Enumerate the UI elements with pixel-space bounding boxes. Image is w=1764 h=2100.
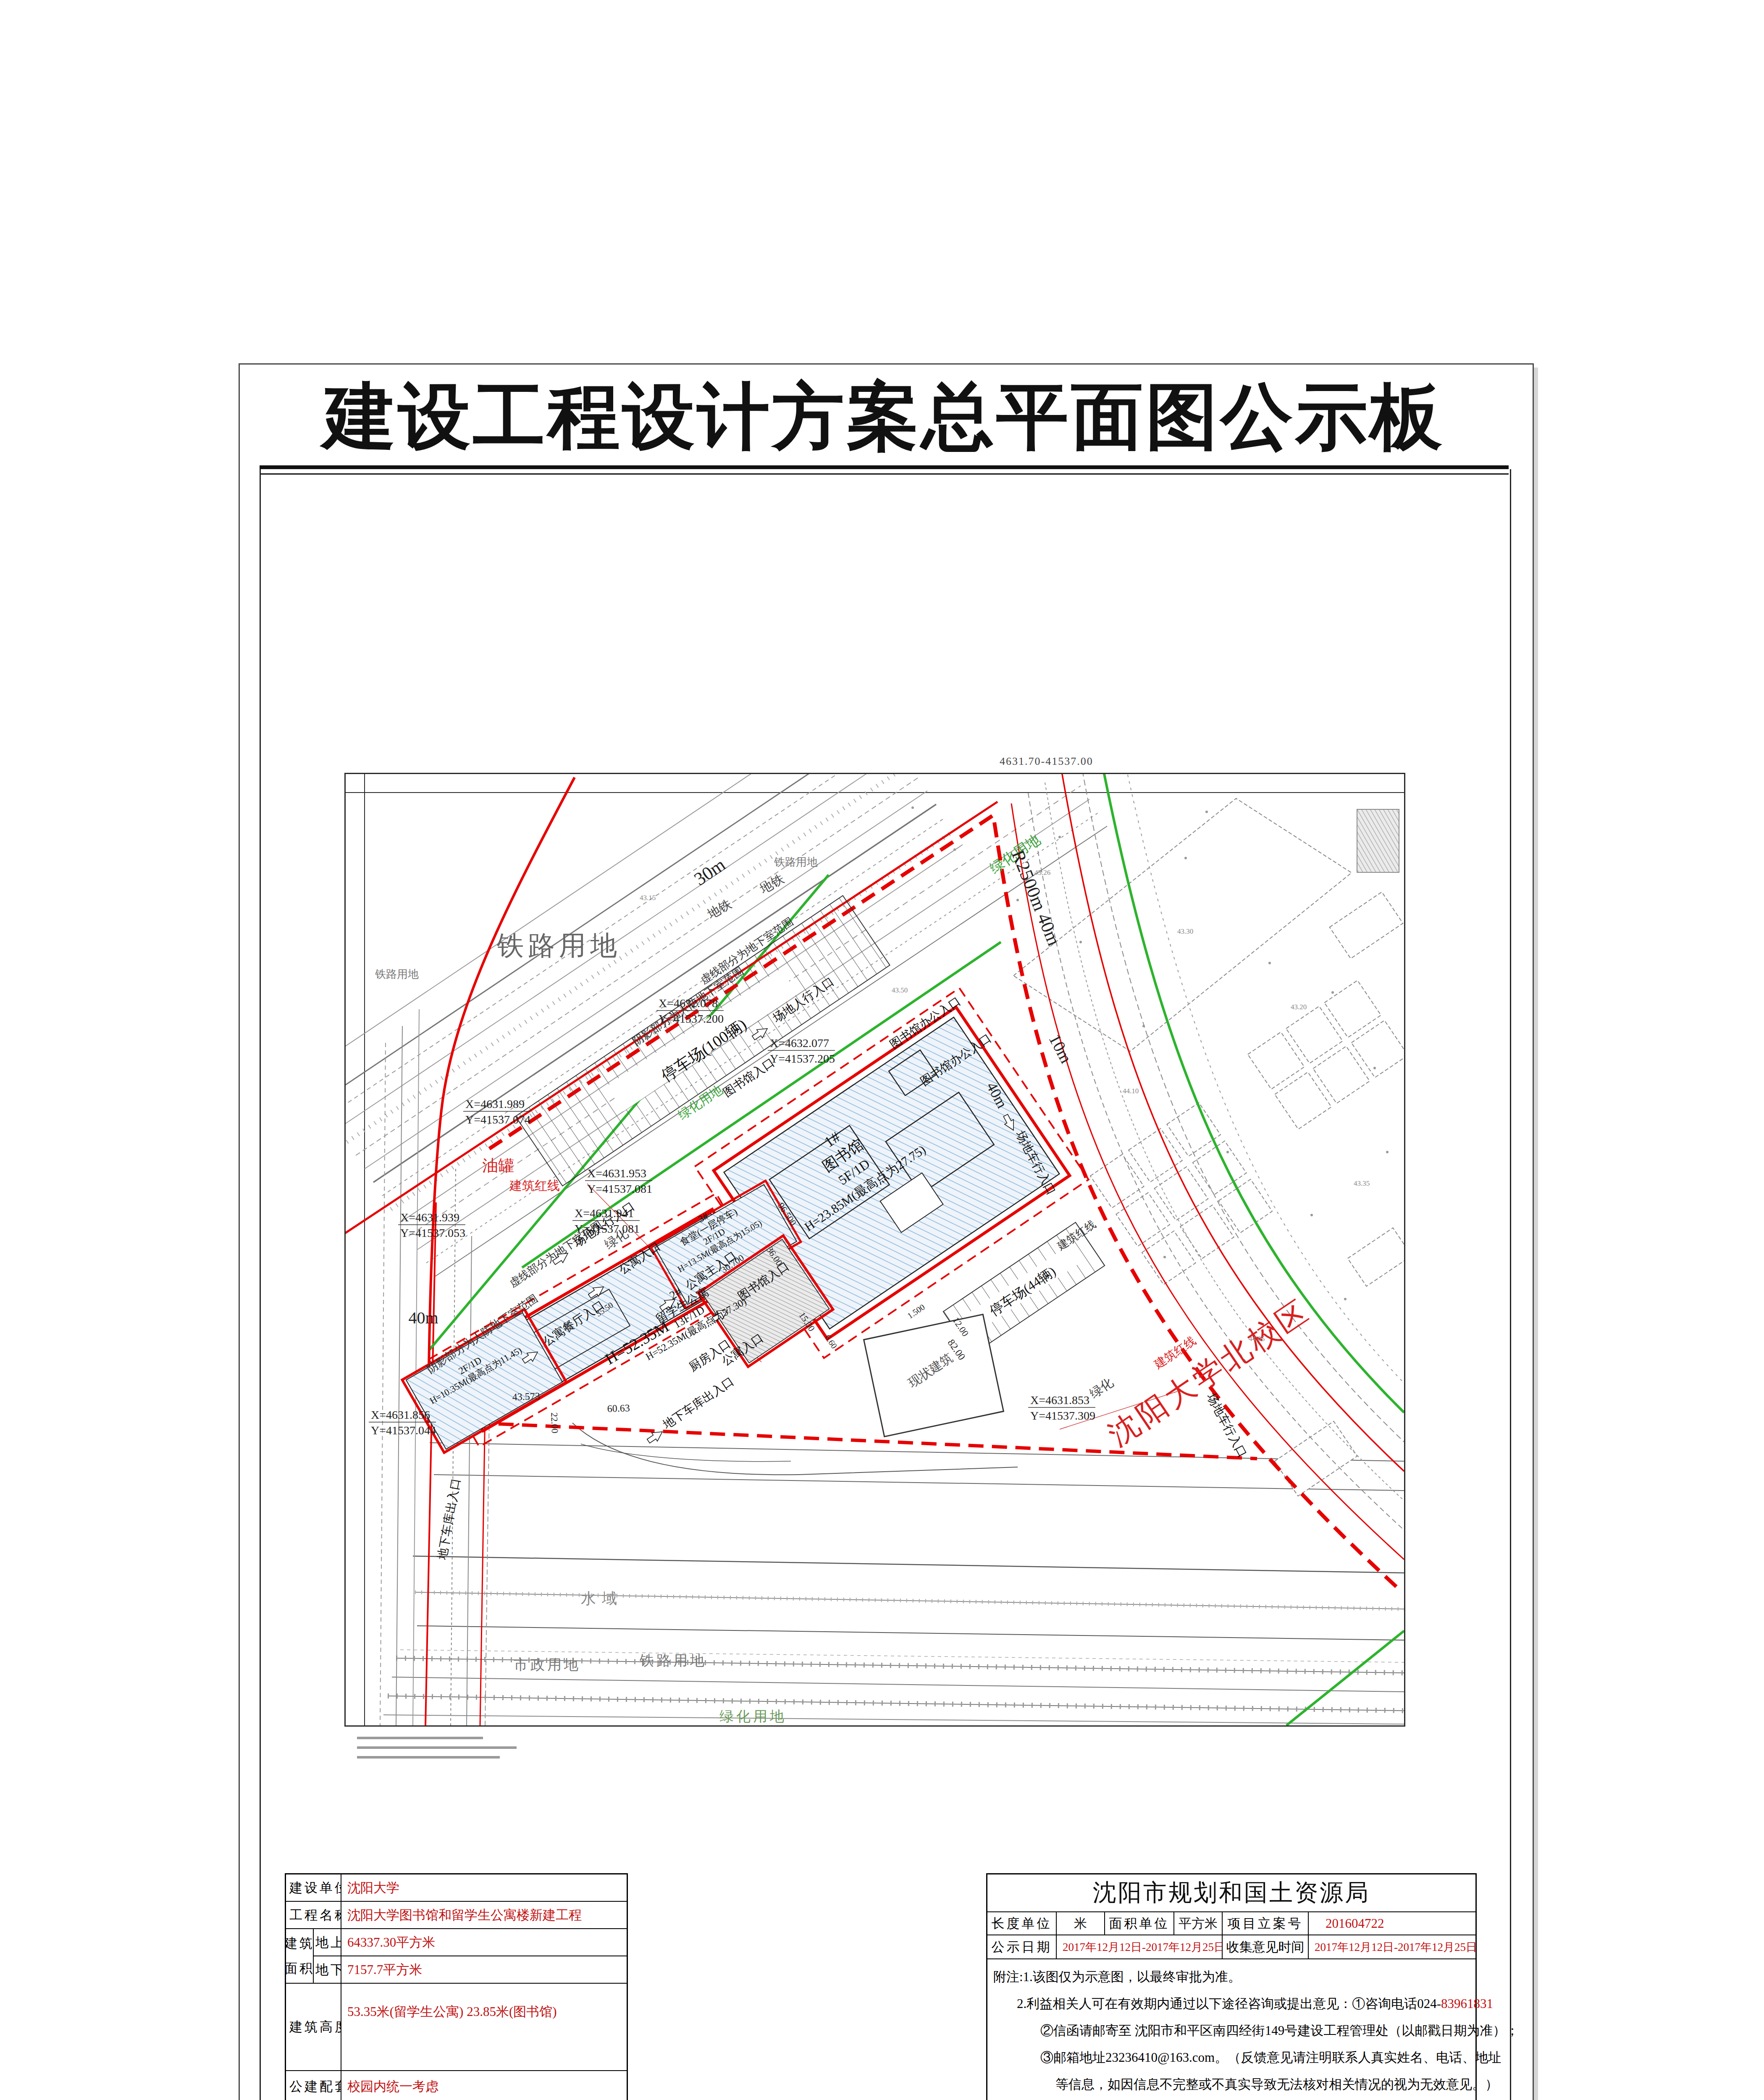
title-rule-thick bbox=[260, 465, 1509, 469]
info-label-height: 建筑高度 bbox=[286, 1984, 341, 2071]
area-label: 市政用地 bbox=[514, 1657, 581, 1672]
coord-y: Y=41537.044 bbox=[371, 1424, 436, 1437]
spot-elevation: 43.30 bbox=[1177, 927, 1193, 935]
info-value-height: 53.35米(留学生公寓) 23.85米(图书馆) bbox=[341, 1984, 627, 2071]
entrance-label: 地下车库出入口 bbox=[660, 1374, 736, 1431]
coord-x: X=4631.989 bbox=[465, 1097, 525, 1110]
coord-y: Y=41537.074 bbox=[465, 1113, 530, 1126]
metro-label: 地铁 bbox=[757, 871, 786, 896]
info-value-unit: 沈阳大学 bbox=[341, 1874, 627, 1902]
publicity-date-value: 2017年12月12日-2017年12月25日 bbox=[1057, 1935, 1223, 1959]
dim-label: R2500m 40m bbox=[1008, 847, 1065, 949]
area-label: 绿化用地 bbox=[719, 1709, 787, 1724]
dim-label: 40m bbox=[408, 1308, 438, 1327]
coord-y: Y=41537.200 bbox=[659, 1012, 724, 1025]
dim-label: 22.00 bbox=[549, 1412, 560, 1433]
coord-y: Y=41537.081 bbox=[587, 1182, 652, 1195]
area-label: 铁路用地 bbox=[639, 1653, 707, 1668]
coord-x: X=4631.953 bbox=[587, 1167, 646, 1180]
coord-x: X=4632.078 bbox=[659, 997, 718, 1010]
red-line-label: 建筑红线 bbox=[509, 1179, 560, 1192]
metro-label: 地铁 bbox=[705, 897, 734, 921]
info-label-above: 地上 bbox=[314, 1929, 341, 1956]
coord-y: Y=41537.309 bbox=[1030, 1409, 1095, 1422]
agency-title: 沈阳市规划和国土资源局 bbox=[987, 1874, 1475, 1912]
coord-y: Y=41537.205 bbox=[770, 1052, 835, 1065]
area-label: 铁路用地 bbox=[774, 856, 818, 868]
map-source-note-line bbox=[357, 1756, 500, 1759]
map-source-note-line bbox=[357, 1746, 517, 1749]
page-title: 建设工程设计方案总平面图公示板 bbox=[260, 369, 1509, 461]
dim-label: 10m bbox=[1045, 1031, 1076, 1066]
coord-x: X=4631.939 bbox=[400, 1211, 459, 1224]
water-band bbox=[413, 1556, 1404, 1640]
map-source-note-line bbox=[357, 1737, 483, 1739]
spot-elevation: 44.05 bbox=[1249, 1335, 1265, 1343]
info-value-project: 沈阳大学图书馆和留学生公寓楼新建工程 bbox=[341, 1902, 627, 1929]
spot-elevation: 44.10 bbox=[1123, 1087, 1139, 1095]
note-line-3: ②信函请邮寄至 沈阳市和平区南四经街149号建设工程管理处（以邮戳日期为准）； bbox=[993, 2017, 1470, 2044]
unit-length-value: 米 bbox=[1057, 1912, 1105, 1935]
info-value-above: 64337.30平方米 bbox=[341, 1929, 627, 1956]
unit-length-label: 长度单位 bbox=[987, 1912, 1057, 1935]
case-number-value: 201604722 bbox=[1309, 1912, 1475, 1935]
info-label-unit: 建设单位 bbox=[286, 1874, 341, 1902]
area-label: 水域 bbox=[581, 1590, 623, 1607]
info-label-area1: 建筑 bbox=[286, 1935, 314, 1952]
feedback-time-value: 2017年12月12日-2017年12月25日 bbox=[1309, 1935, 1475, 1959]
note-line-2: 2.利益相关人可在有效期内通过以下途径咨询或提出意见：①咨询电话024-8396… bbox=[993, 1990, 1470, 2017]
south-road-lines bbox=[430, 1423, 1404, 1491]
dim-label: 43.573 bbox=[512, 1391, 540, 1402]
spot-elevation: 43.20 bbox=[1291, 1003, 1307, 1011]
area-label: 绿化 bbox=[1087, 1375, 1116, 1401]
coord-x: X=4632.077 bbox=[770, 1037, 829, 1050]
campus-name-label: 沈阳大学北校区 bbox=[1102, 1293, 1316, 1452]
coord-x: X=4631.853 bbox=[1030, 1394, 1089, 1407]
unit-area-label: 面积单位 bbox=[1105, 1912, 1174, 1935]
unit-area-value: 平方米 bbox=[1174, 1912, 1223, 1935]
agency-table: 沈阳市规划和国土资源局 长度单位 米 面积单位 平方米 项目立案号 201604… bbox=[986, 1873, 1477, 2100]
note-line-4: ③邮箱地址23236410@163.com。（反馈意见请注明联系人真实姓名、电话… bbox=[993, 2044, 1470, 2071]
spot-elevation: 43.26 bbox=[1034, 869, 1050, 877]
coord-x: X=4631.856 bbox=[371, 1408, 430, 1421]
notes-block: 附注:1.该图仅为示意图，以最终审批为准。 2.利益相关人可在有效期内通过以下途… bbox=[987, 1959, 1475, 2100]
notice-board-sheet: 建设工程设计方案总平面图公示板 4631.70-41537.00 bbox=[0, 0, 1764, 2100]
spot-elevation: 43.35 bbox=[1354, 1179, 1370, 1187]
entrance-label: 地下车库出入口 bbox=[435, 1477, 462, 1561]
info-label-below: 地下 bbox=[314, 1956, 341, 1984]
coord-y: Y=41537.053 bbox=[400, 1226, 465, 1239]
oil-tank-label: 油罐 bbox=[482, 1157, 514, 1174]
dim-label: 60.63 bbox=[607, 1402, 630, 1414]
info-value-below: 7157.7平方米 bbox=[341, 1956, 627, 1984]
note-line-5: 等信息，如因信息不完整或不真实导致无法核对相关情况的视为无效意见。） bbox=[993, 2071, 1470, 2098]
spot-elevation: 43.50 bbox=[892, 986, 908, 994]
area-label: 铁路用地 bbox=[375, 968, 419, 980]
info-label-project: 工程名称 bbox=[286, 1902, 341, 1929]
spot-elevation: 43.15 bbox=[640, 894, 656, 902]
info-label-public: 公建配套 bbox=[286, 2071, 341, 2100]
project-info-table: 建设单位 沈阳大学 工程名称 沈阳大学图书馆和留学生公寓楼新建工程 建筑 面积 … bbox=[285, 1873, 628, 2100]
note-2-phone: 83961831 bbox=[1441, 1996, 1493, 2011]
case-number-label: 项目立案号 bbox=[1223, 1912, 1309, 1935]
info-label-area2: 面积 bbox=[286, 1960, 314, 1977]
area-label: 铁路用地 bbox=[496, 931, 621, 961]
dim-label: 30m bbox=[690, 854, 729, 890]
note-2-text: 2.利益相关人可在有效期内通过以下途径咨询或提出意见：①咨询电话024- bbox=[1017, 1996, 1441, 2011]
dim-label: 1.500 bbox=[906, 1302, 927, 1320]
site-plan-svg: 铁路用地 铁路用地 铁路用地 绿化用地 绿化用地 绿化 绿化 水域 市政用地 铁… bbox=[346, 774, 1404, 1725]
map-grid-coordinate: 4631.70-41537.00 bbox=[1000, 755, 1093, 768]
info-value-public: 校园内统一考虑 bbox=[341, 2071, 627, 2100]
info-label-area-group: 建筑 面积 bbox=[286, 1929, 314, 1984]
feedback-time-label: 收集意见时间 bbox=[1223, 1935, 1309, 1959]
publicity-date-label: 公示日期 bbox=[987, 1935, 1057, 1959]
site-plan-map: 铁路用地 铁路用地 铁路用地 绿化用地 绿化用地 绿化 绿化 水域 市政用地 铁… bbox=[344, 773, 1405, 1727]
note-line-1: 附注:1.该图仅为示意图，以最终审批为准。 bbox=[993, 1963, 1470, 1990]
